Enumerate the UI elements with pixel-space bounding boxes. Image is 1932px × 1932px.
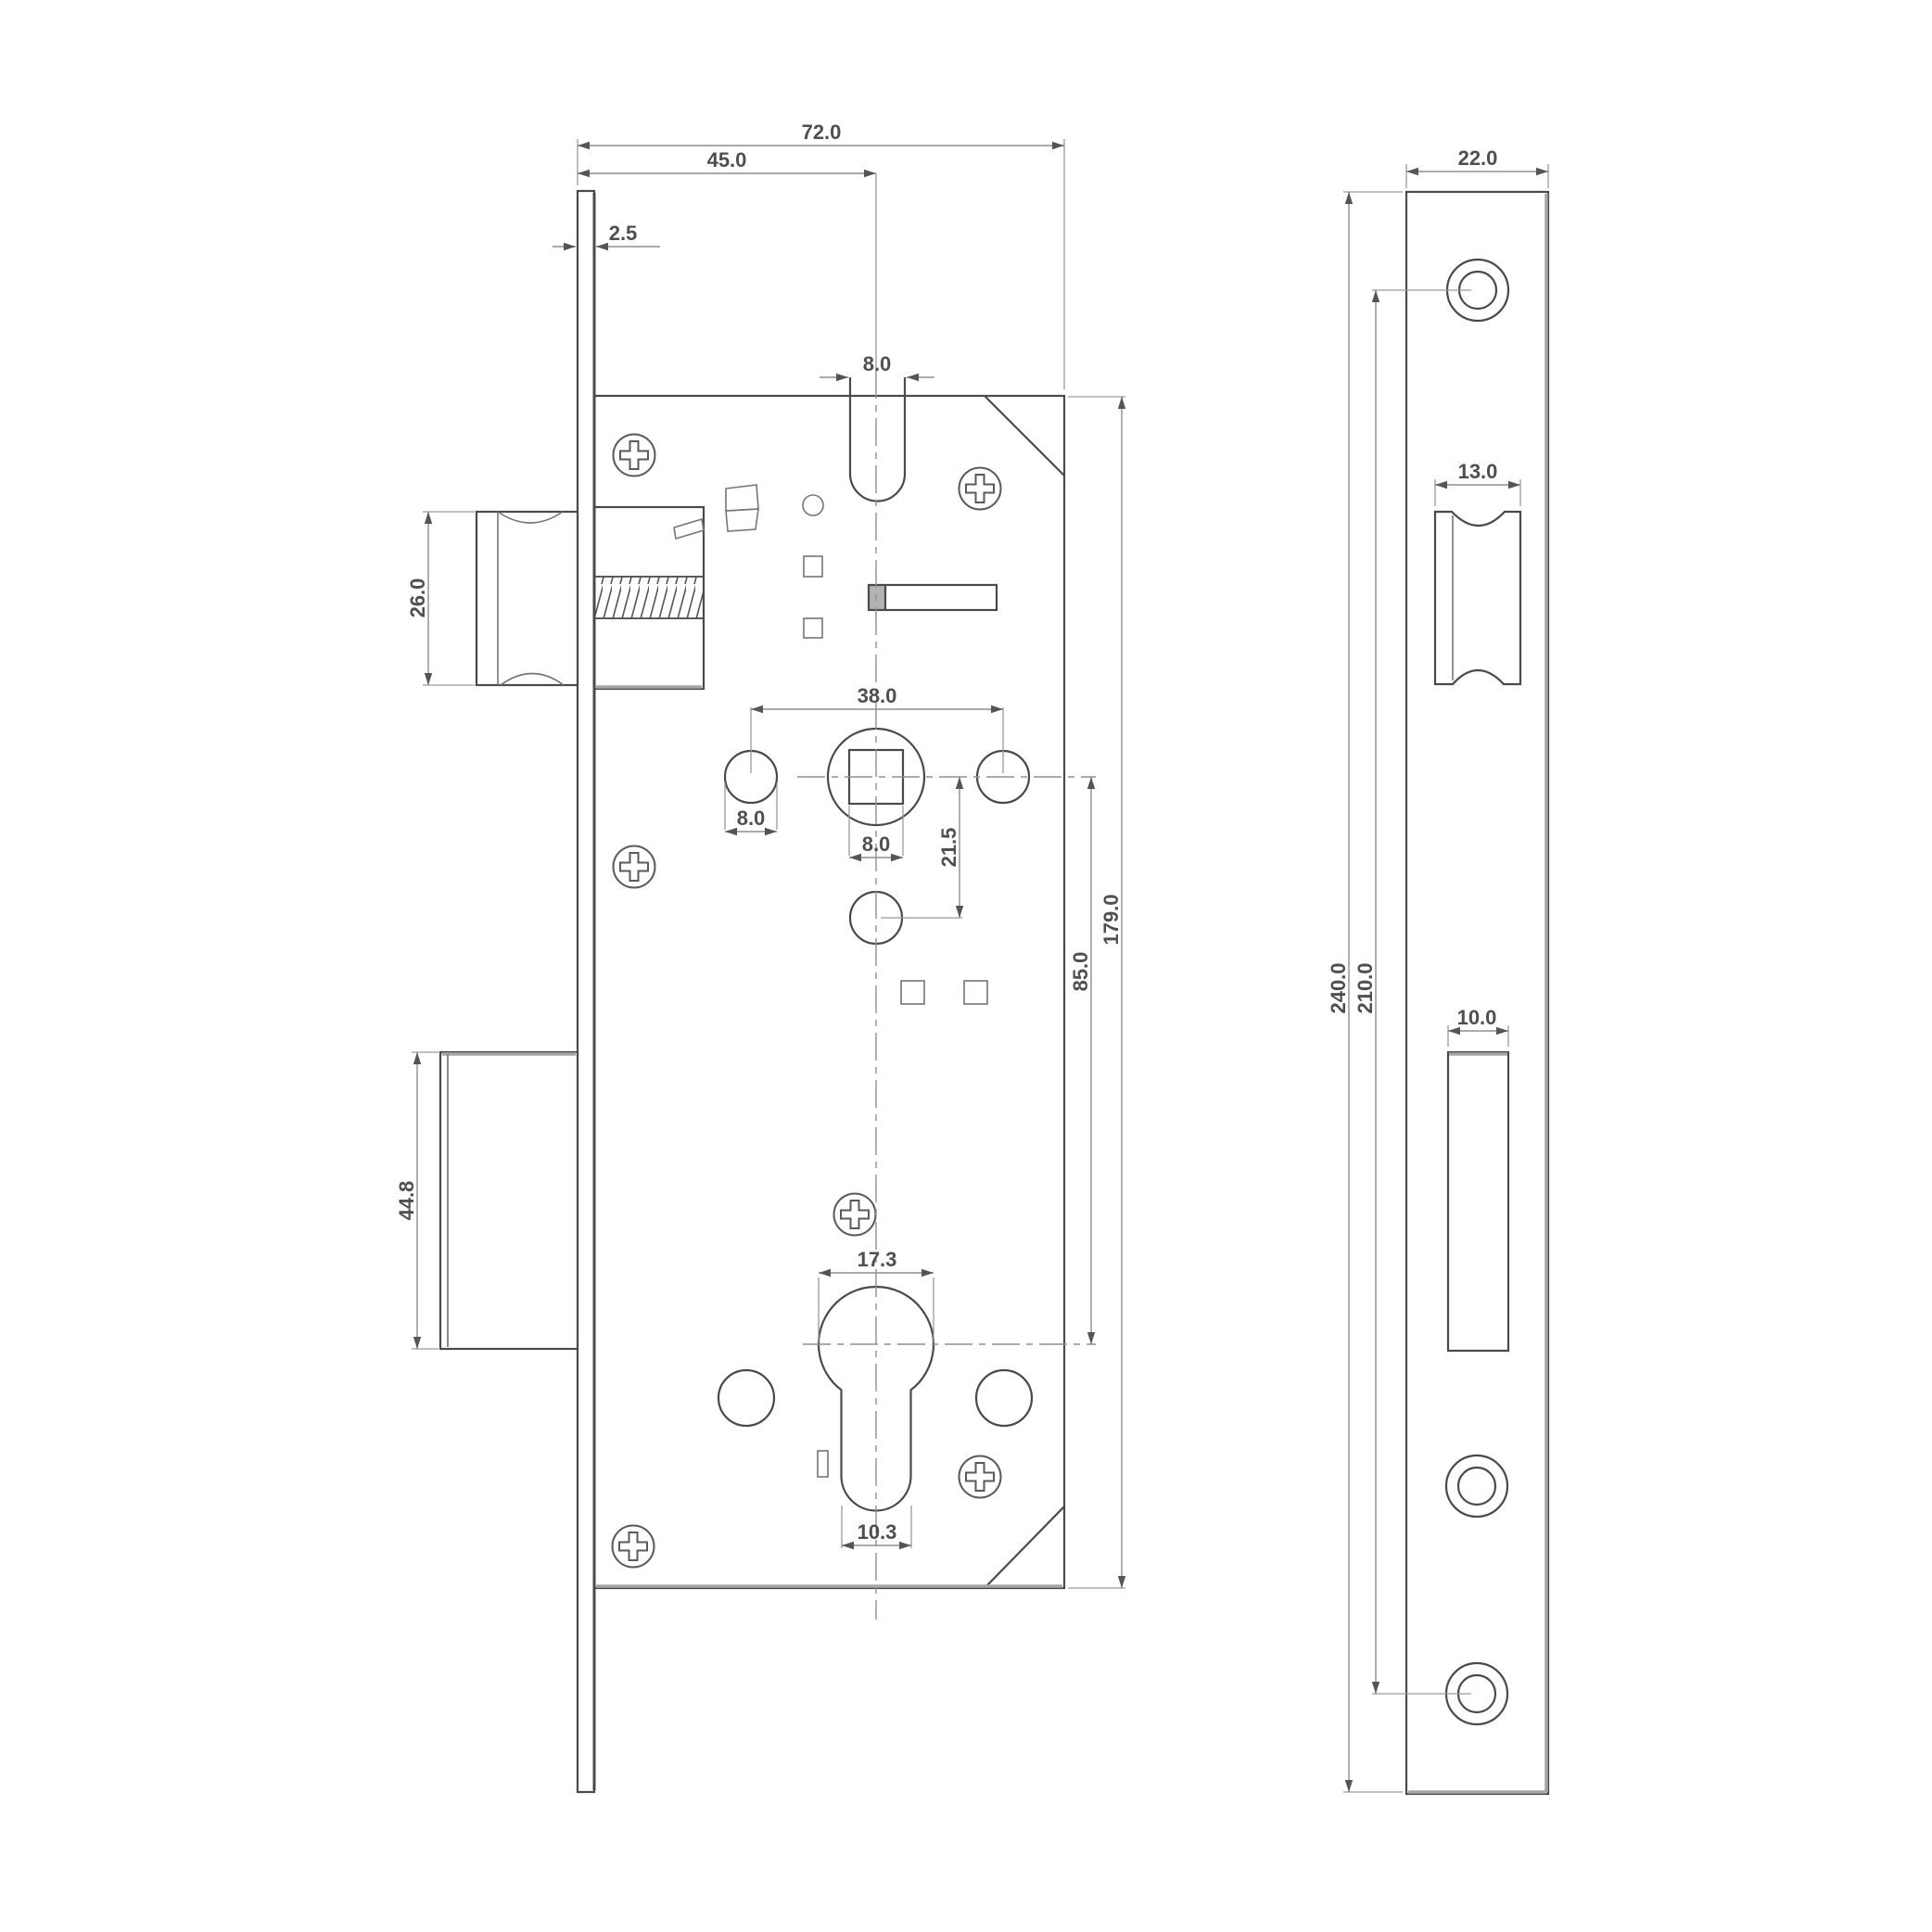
dim-plate-width-label: 22.0 [1458,146,1498,170]
phillips-screw-icon [960,468,1001,510]
dim-plate-height-label: 240.0 [1327,962,1350,1013]
dim-faceplate-thickness-label: 2.5 [609,222,638,245]
lock-case [594,396,1064,1588]
dim-overall-width-label: 72.0 [802,121,842,144]
deadbolt [440,1052,578,1349]
dim-backset: 45.0 [578,148,876,371]
dim-latch-height-label: 26.0 [406,578,429,618]
dim-side-hole-label: 8.0 [737,807,766,830]
dim-screw-spacing-label: 210.0 [1354,962,1377,1013]
dim-overall-width: 72.0 [578,121,1064,389]
dim-offset-21-5-label: 21.5 [937,828,960,868]
dim-hole-spacing-label: 38.0 [858,684,897,707]
dim-latch-height: 26.0 [406,512,475,685]
dim-deadbolt-cutout-label: 10.0 [1457,1006,1497,1029]
phillips-screw-icon [960,1456,1001,1498]
dim-cylinder-diameter-label: 17.3 [858,1248,897,1271]
dim-centers-85-label: 85.0 [1069,952,1092,992]
dim-cylinder-neck-label: 10.3 [858,1520,897,1544]
phillips-screw-icon [614,435,655,477]
dim-deadbolt-height: 44.8 [395,1052,439,1349]
dim-centers-85: 85.0 [1069,777,1092,1344]
dim-case-height-label: 179.0 [1099,894,1123,945]
lock-technical-drawing: 72.0 45.0 2.5 8.0 26.0 38.0 [0,0,1932,1932]
main-view: 72.0 45.0 2.5 8.0 26.0 38.0 [395,121,1125,1792]
strike-faceplate [1406,192,1548,1794]
dim-deadbolt-height-label: 44.8 [395,1181,418,1221]
side-view: 22.0 240.0 210.0 13.0 10.0 [1327,146,1548,1794]
dim-plate-width: 22.0 [1406,146,1548,188]
phillips-screw-icon [834,1194,876,1236]
drawing-canvas: 72.0 45.0 2.5 8.0 26.0 38.0 [0,0,1932,1932]
phillips-screw-icon [614,846,655,888]
dim-faceplate-thickness: 2.5 [553,222,660,247]
phillips-screw-icon [613,1526,655,1568]
latch-bolt [477,512,578,685]
dim-spindle-square-label: 8.0 [862,833,891,856]
dim-case-height: 179.0 [1068,397,1125,1588]
dim-latch-cutout-label: 13.0 [1458,460,1498,483]
dim-backset-label: 45.0 [707,148,747,172]
faceplate-edge [578,191,594,1792]
spring-hatch [594,577,704,618]
dim-top-slot-width-label: 8.0 [863,352,892,375]
dim-top-slot-width: 8.0 [820,352,934,377]
